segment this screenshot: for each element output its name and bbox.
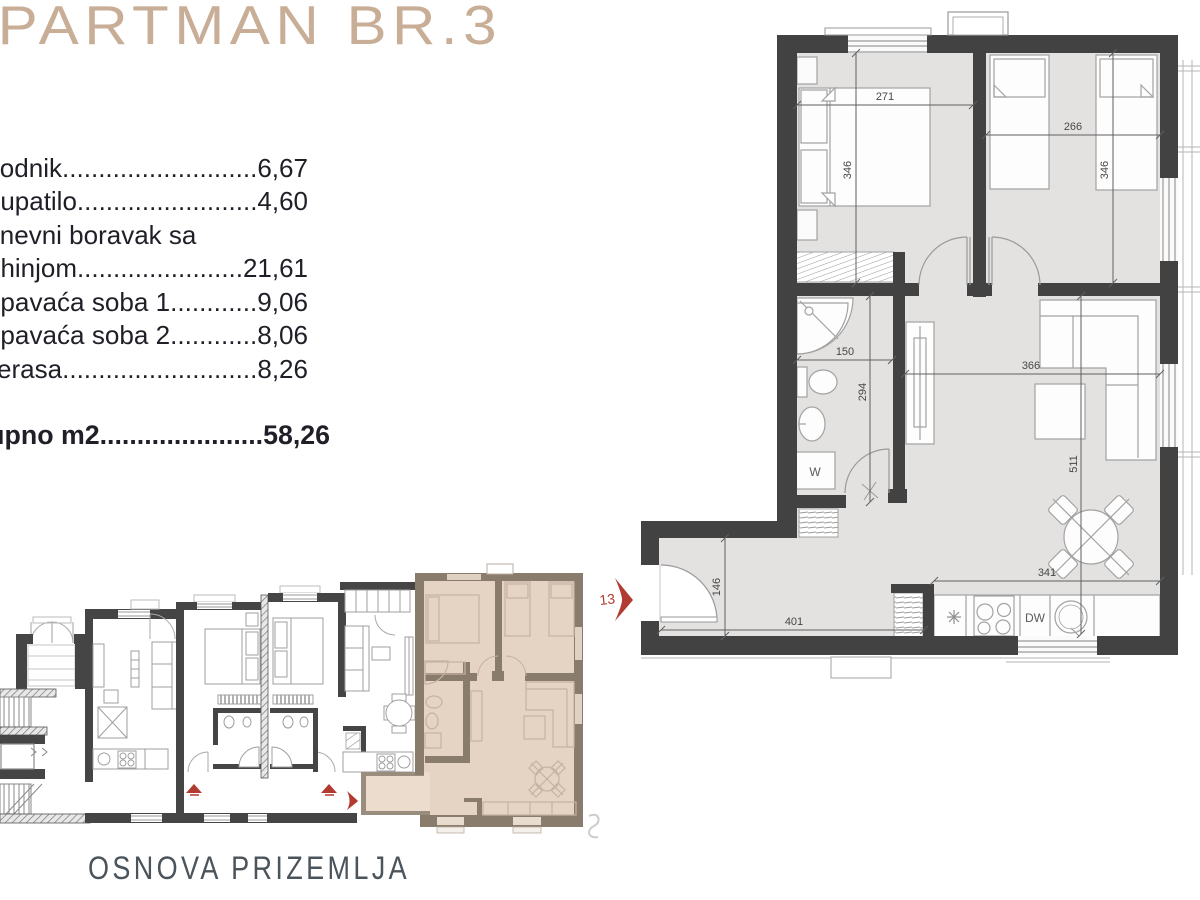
svg-text:OSNOVA PRIZEMLJA: OSNOVA PRIZEMLJA: [88, 850, 410, 886]
svg-text:Spavaća soba 1............9,06: Spavaća soba 1............9,06: [0, 287, 308, 317]
svg-text:271: 271: [876, 91, 894, 103]
svg-text:366: 366: [1022, 360, 1040, 372]
svg-text:Terasa........................: Terasa...........................8,26: [0, 354, 308, 384]
svg-text:kuhinjom......................: kuhinjom.......................21,61: [0, 253, 308, 283]
svg-text:W: W: [809, 465, 821, 479]
svg-text:294: 294: [857, 383, 869, 401]
svg-text:401: 401: [785, 616, 803, 628]
svg-text:266: 266: [1064, 121, 1082, 133]
svg-text:Dnevni boravak sa: Dnevni boravak sa: [0, 220, 197, 250]
svg-text:150: 150: [836, 346, 854, 358]
svg-text:13: 13: [599, 590, 616, 608]
svg-text:DW: DW: [1025, 611, 1046, 625]
svg-text:APARTMAN BR.3: APARTMAN BR.3: [0, 0, 502, 56]
svg-text:Hodnik........................: Hodnik...........................6,67: [0, 153, 308, 183]
svg-text:346: 346: [842, 161, 854, 179]
svg-text:346: 346: [1099, 161, 1111, 179]
svg-text:341: 341: [1038, 567, 1056, 579]
svg-text:Ukupno m2.....................: Ukupno m2......................58,26: [0, 420, 330, 450]
svg-text:511: 511: [1068, 455, 1080, 473]
svg-text:Spavaća soba 2............8,06: Spavaća soba 2............8,06: [0, 320, 308, 350]
svg-text:146: 146: [711, 578, 723, 596]
svg-text:Kupatilo......................: Kupatilo.........................4,60: [0, 186, 308, 216]
